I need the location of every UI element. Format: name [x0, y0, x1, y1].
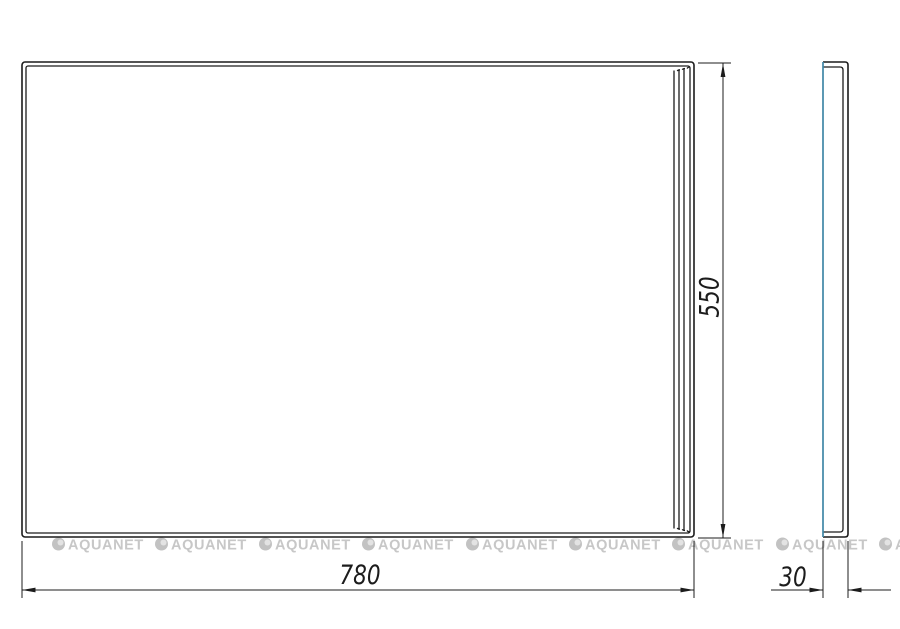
side-view-inner-outline [823, 67, 843, 532]
dimension-height-label: 550 [693, 276, 725, 317]
watermark: AQUANET [879, 538, 900, 554]
arrowhead-left [848, 588, 862, 593]
watermark-text: AQUANET [688, 538, 764, 554]
height-dimension: 550 [693, 63, 731, 538]
watermark: AQUANET [569, 538, 661, 554]
dimension-width-label: 780 [339, 559, 380, 591]
watermark: AQUANET [362, 538, 454, 554]
aquanet-logo-icon [265, 540, 271, 546]
aquanet-logo-icon [678, 540, 684, 546]
aquanet-logo-icon [885, 540, 891, 546]
technical-drawing-svg: AQUANET AQUANET AQUANET AQUANET AQUANET [0, 0, 900, 629]
watermark: AQUANET [155, 538, 247, 554]
watermark-text: AQUANET [68, 538, 144, 554]
dimension-depth-label: 30 [779, 561, 806, 593]
front-view-outer-outline [22, 62, 694, 537]
watermark: AQUANET [466, 538, 558, 554]
watermark: AQUANET [52, 538, 144, 554]
arrowhead-up [721, 64, 726, 78]
aquanet-logo-icon [58, 540, 64, 546]
side-view-outer-outline [823, 62, 848, 537]
side-view [823, 62, 848, 537]
arrowhead-right [681, 588, 695, 593]
arrowhead-right [810, 588, 824, 593]
watermark-text: AQUANET [378, 538, 454, 554]
watermark: AQUANET [776, 538, 868, 554]
front-view [22, 62, 694, 537]
watermark-text: AQUANET [792, 538, 868, 554]
aquanet-logo-icon [161, 540, 167, 546]
aquanet-logo-icon [368, 540, 374, 546]
watermark: AQUANET [672, 538, 764, 554]
watermark-text: AQUANET [171, 538, 247, 554]
arrowhead-left [22, 588, 36, 593]
arrowhead-down [721, 524, 726, 538]
watermark-text: AQUANET [482, 538, 558, 554]
watermark-text: AQUANET [895, 538, 900, 554]
watermark: AQUANET [259, 538, 351, 554]
front-view-inner-outline [26, 66, 690, 533]
drawing-canvas: AQUANET AQUANET AQUANET AQUANET AQUANET [0, 0, 900, 629]
watermark-row: AQUANET AQUANET AQUANET AQUANET AQUANET [52, 538, 900, 554]
aquanet-logo-icon [575, 540, 581, 546]
watermark-text: AQUANET [585, 538, 661, 554]
watermark-text: AQUANET [275, 538, 351, 554]
aquanet-logo-icon [782, 540, 788, 546]
aquanet-logo-icon [472, 540, 478, 546]
